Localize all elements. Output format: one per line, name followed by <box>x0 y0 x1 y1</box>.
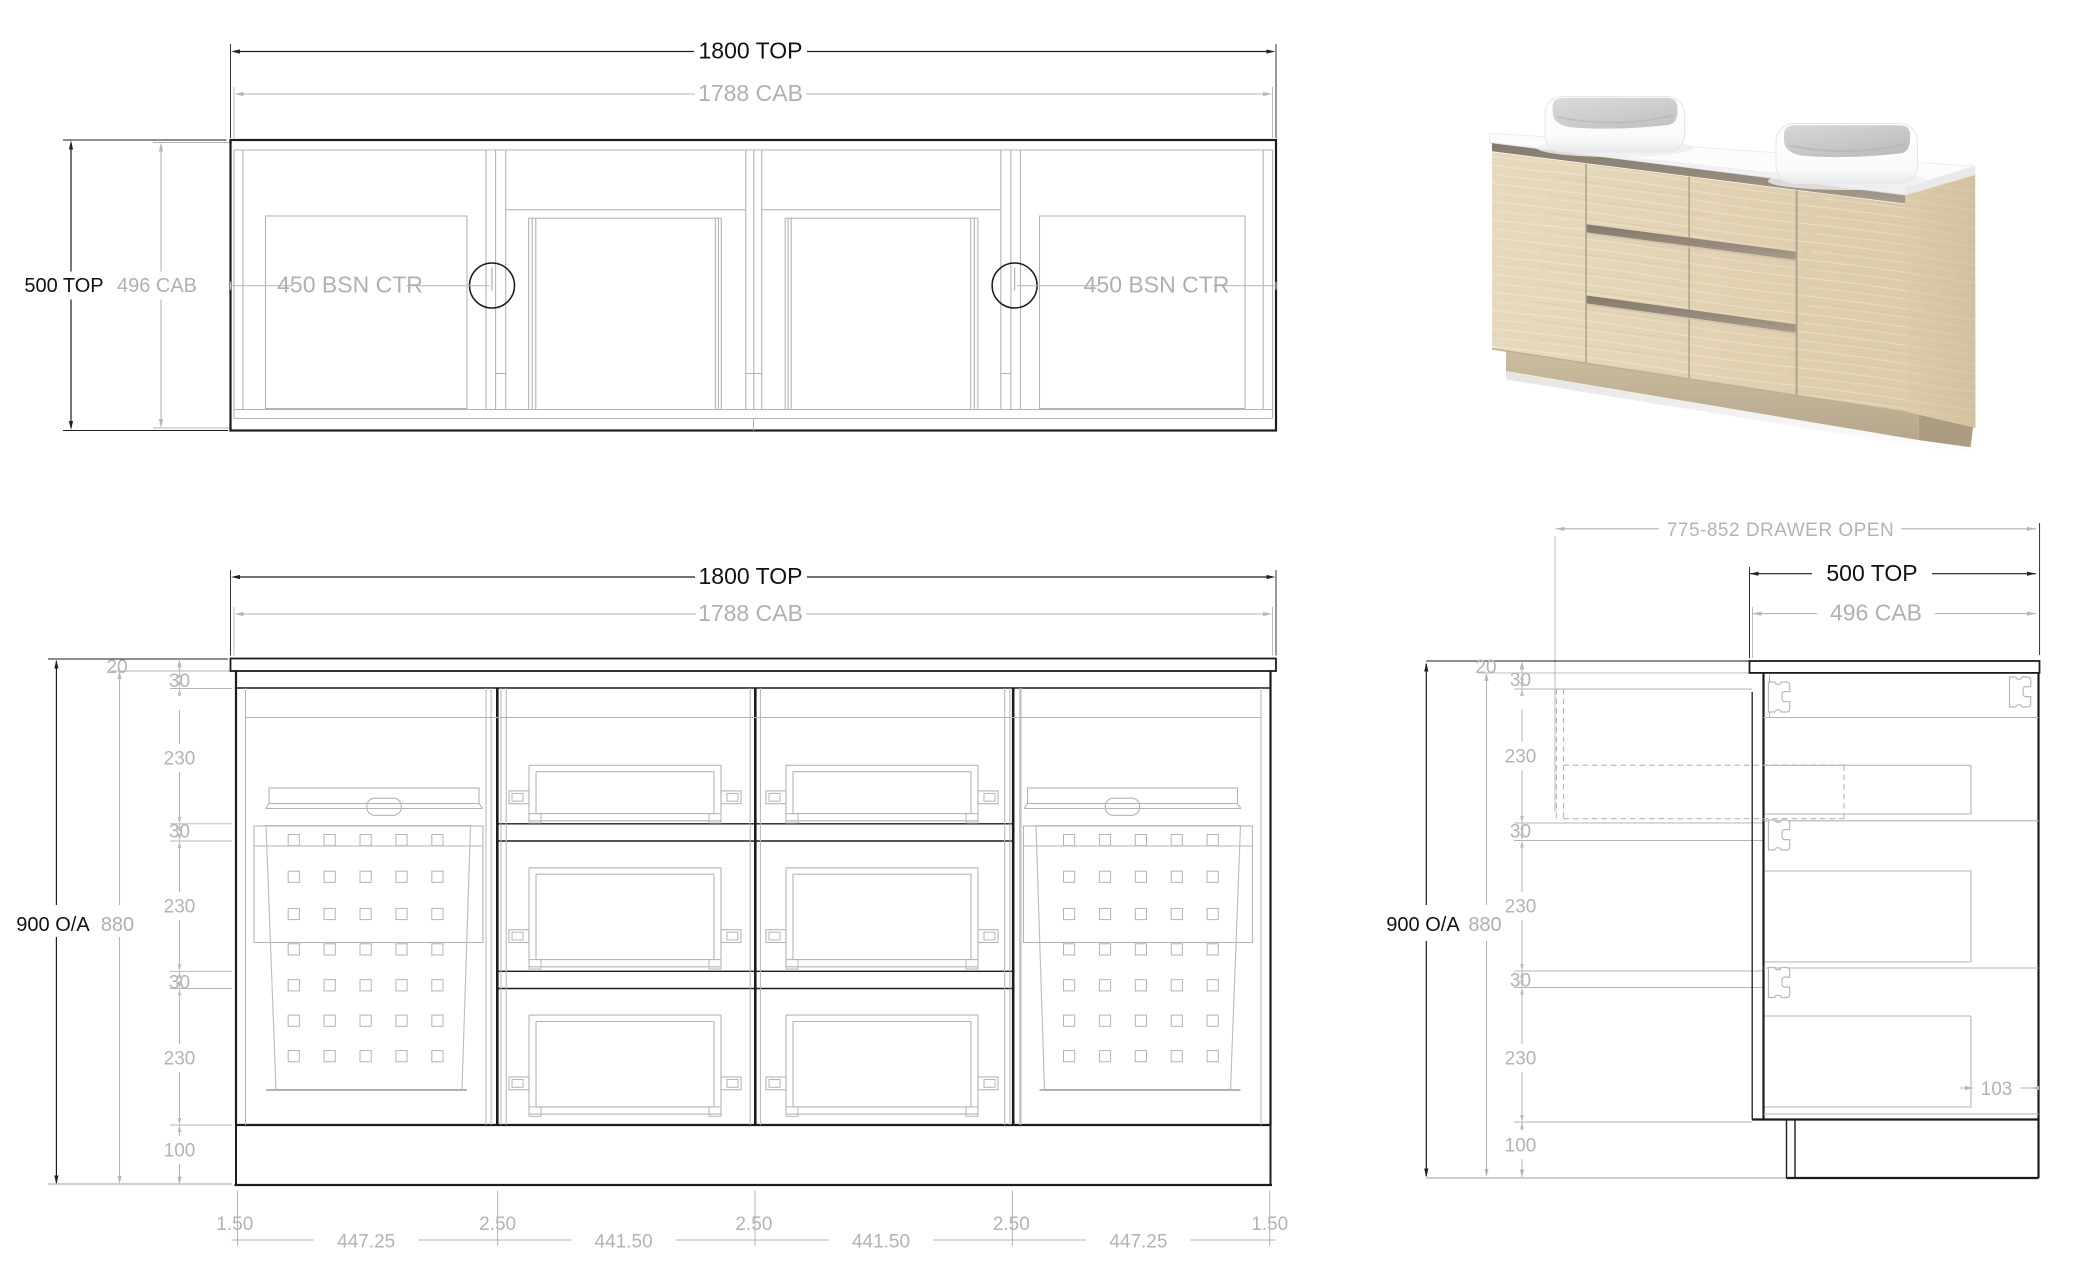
svg-text:775-852 DRAWER OPEN: 775-852 DRAWER OPEN <box>1667 520 1894 541</box>
svg-text:20: 20 <box>106 657 127 678</box>
svg-text:103: 103 <box>1981 1079 2013 1100</box>
svg-text:450 BSN CTR: 450 BSN CTR <box>1084 272 1230 298</box>
svg-text:450 BSN CTR: 450 BSN CTR <box>277 272 423 298</box>
svg-text:1800 TOP: 1800 TOP <box>698 38 802 64</box>
svg-text:2.50: 2.50 <box>479 1214 516 1235</box>
svg-text:30: 30 <box>1510 822 1531 843</box>
svg-text:2.50: 2.50 <box>735 1214 772 1235</box>
svg-text:880: 880 <box>101 914 134 936</box>
svg-text:900 O/A: 900 O/A <box>1386 914 1460 936</box>
svg-text:20: 20 <box>1475 657 1496 678</box>
svg-text:230: 230 <box>164 749 196 770</box>
svg-text:30: 30 <box>1510 670 1531 691</box>
svg-text:2.50: 2.50 <box>993 1214 1030 1235</box>
svg-text:496 CAB: 496 CAB <box>117 275 197 297</box>
svg-text:496 CAB: 496 CAB <box>1830 600 1922 626</box>
svg-text:1800 TOP: 1800 TOP <box>698 563 802 589</box>
svg-text:230: 230 <box>1505 1049 1537 1070</box>
svg-text:447.25: 447.25 <box>337 1232 395 1253</box>
svg-text:230: 230 <box>164 897 196 918</box>
svg-text:1.50: 1.50 <box>216 1214 253 1235</box>
svg-text:880: 880 <box>1468 914 1501 936</box>
svg-text:441.50: 441.50 <box>852 1232 910 1253</box>
svg-text:100: 100 <box>164 1141 196 1162</box>
svg-text:230: 230 <box>164 1049 196 1070</box>
svg-text:1788 CAB: 1788 CAB <box>698 80 803 106</box>
svg-text:441.50: 441.50 <box>595 1232 653 1253</box>
svg-text:1788 CAB: 1788 CAB <box>698 600 803 626</box>
svg-text:500 TOP: 500 TOP <box>1826 560 1917 586</box>
svg-text:1.50: 1.50 <box>1251 1214 1288 1235</box>
svg-text:230: 230 <box>1505 747 1537 768</box>
svg-text:100: 100 <box>1505 1136 1537 1157</box>
svg-text:230: 230 <box>1505 897 1537 918</box>
svg-text:447.25: 447.25 <box>1109 1232 1167 1253</box>
svg-text:500 TOP: 500 TOP <box>24 275 103 297</box>
svg-text:900 O/A: 900 O/A <box>16 914 90 936</box>
